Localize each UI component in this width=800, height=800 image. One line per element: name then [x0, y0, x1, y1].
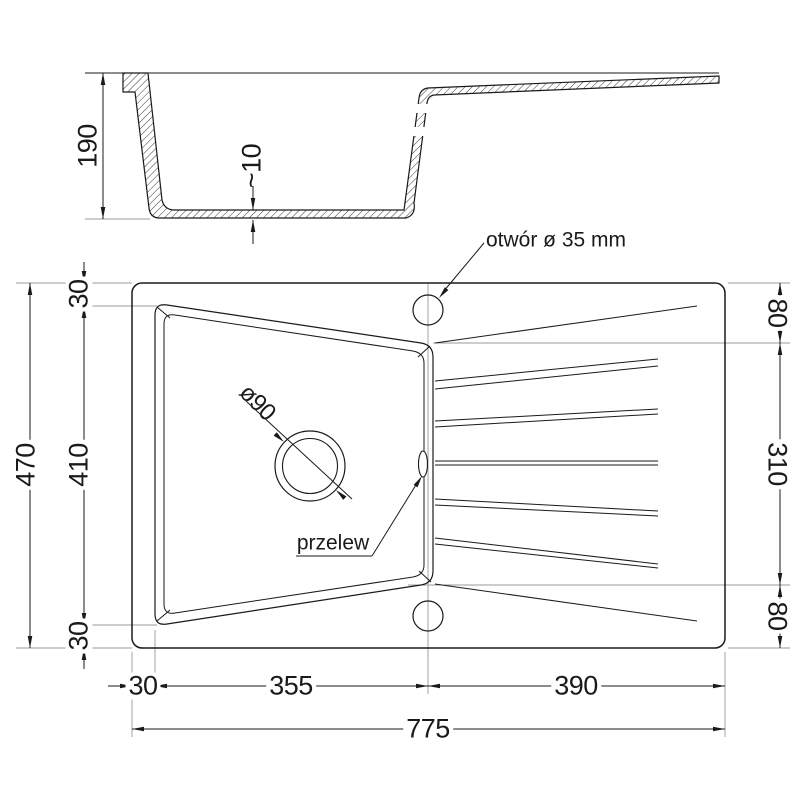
dim-bottom-thickness: ~10 [239, 144, 266, 188]
bowl-corner-chamfers [157, 307, 431, 621]
drain-inner-circle [283, 439, 338, 494]
dim-board-bottom: 80 [764, 598, 791, 633]
bowl-outer-outline [155, 305, 433, 625]
tap-hole-leader [443, 243, 484, 292]
drain-outer-circle [275, 431, 345, 501]
overflow-leader [372, 480, 419, 556]
tap-hole-label: otwór ø 35 mm [486, 230, 626, 251]
dim-bowl-width: 355 [266, 673, 316, 700]
bowl-inner-outline [164, 315, 424, 614]
dimension-lines [30, 73, 780, 729]
section-profile [123, 73, 719, 218]
dim-board-mid: 310 [764, 439, 791, 489]
dim-board-top: 80 [764, 295, 791, 330]
top-view [132, 283, 725, 648]
dim-board-width: 390 [551, 673, 601, 700]
dim-bowl-opening-height: 410 [66, 440, 93, 490]
dim-margin-left: 30 [125, 673, 160, 700]
overflow-slot [419, 451, 428, 477]
technical-drawing-page: 190 ~10 470 410 30 30 80 310 80 30 355 3… [0, 0, 800, 800]
dim-rim-top: 30 [66, 276, 93, 311]
dim-total-width: 775 [403, 716, 453, 743]
section-break-gap [413, 127, 426, 136]
drainboard-grooves [435, 306, 697, 621]
dim-total-height: 470 [13, 440, 40, 490]
dim-bowl-depth: 190 [75, 124, 102, 168]
section-break-gap [416, 104, 429, 113]
overflow-label: przelew [297, 533, 369, 554]
dimension-arrows [28, 73, 783, 731]
drawing-canvas [0, 0, 800, 800]
cross-section-view [85, 73, 719, 218]
dim-rim-bottom: 30 [66, 618, 93, 653]
